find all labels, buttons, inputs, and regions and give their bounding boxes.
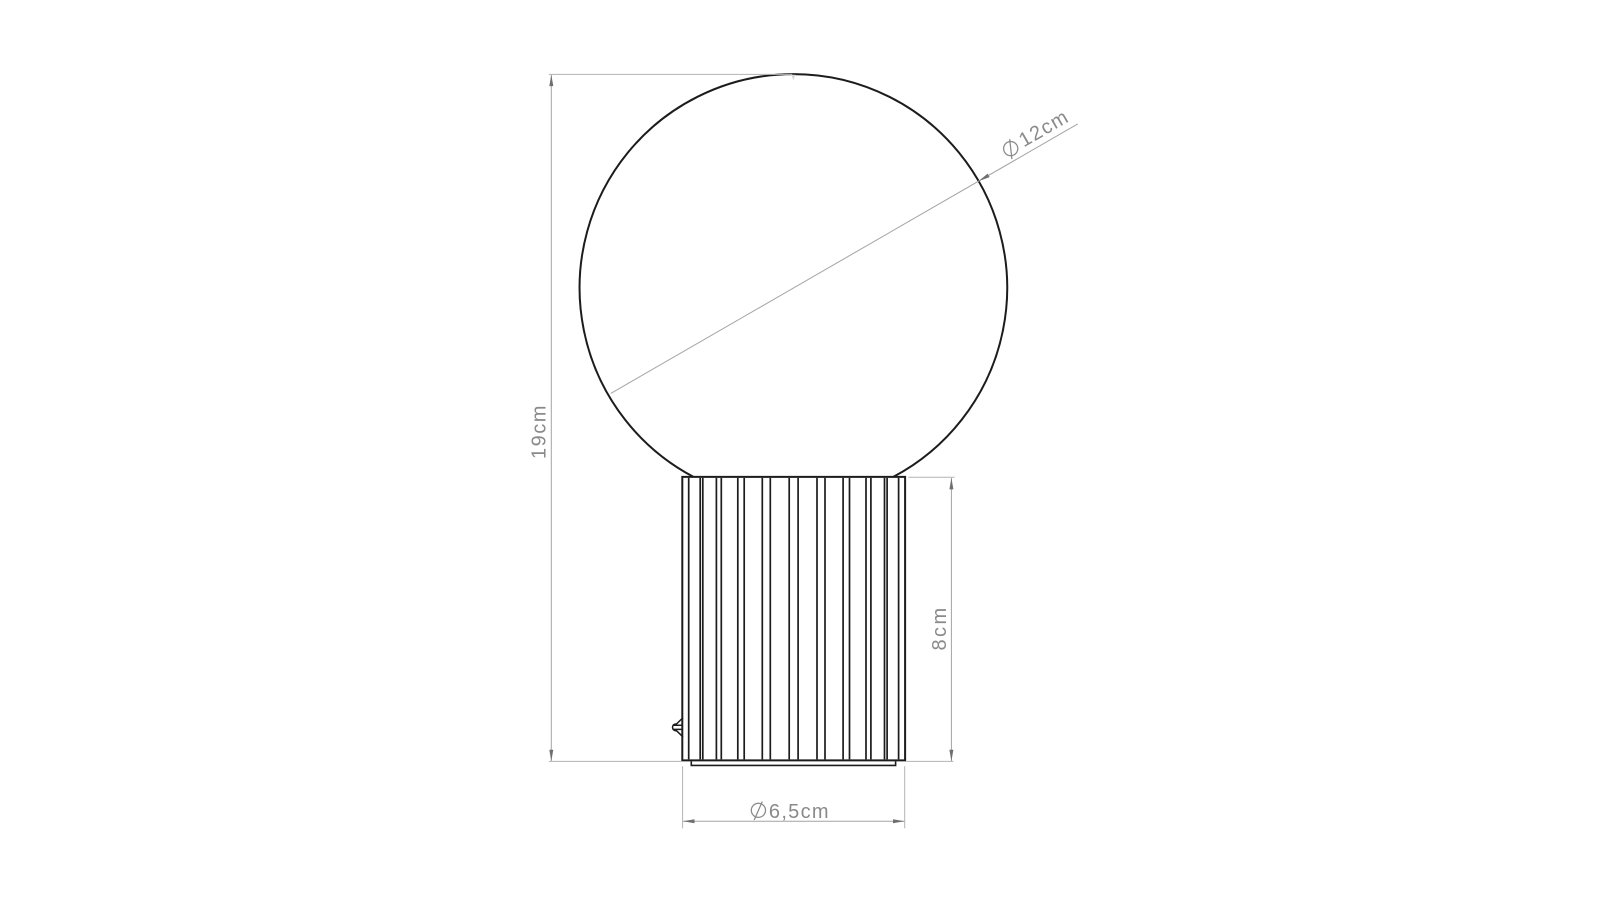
- svg-text:12cm: 12cm: [1015, 106, 1073, 152]
- svg-text:8cm: 8cm: [929, 606, 951, 651]
- svg-text:19cm: 19cm: [528, 404, 550, 459]
- svg-text:6,5cm: 6,5cm: [769, 801, 830, 823]
